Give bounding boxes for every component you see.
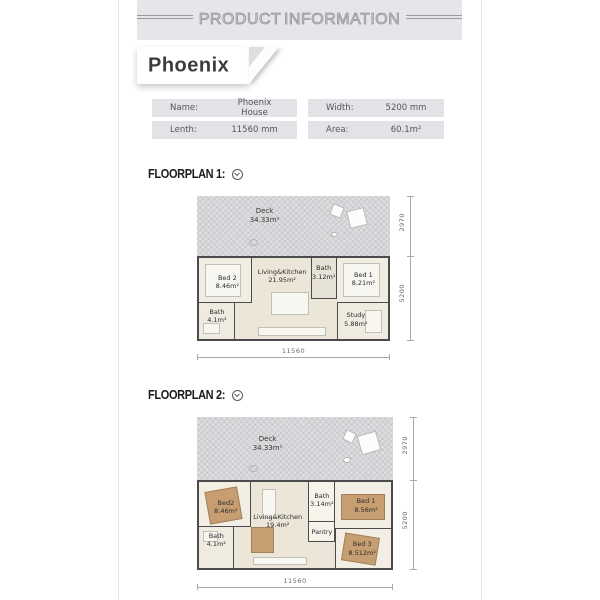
fp2-bath-label: Bath 4.1m² <box>201 532 232 548</box>
width-label: Width: <box>326 103 380 113</box>
area-value: 60.1m² <box>380 125 444 135</box>
fp1-width-dim: 11560 <box>282 347 305 355</box>
fp2-living-label: Living&Kitchen 19.4m² <box>245 513 310 529</box>
chevron-down-icon[interactable] <box>232 169 243 180</box>
header-band: PRODUCT INFORMATION <box>137 0 462 40</box>
product-name-ribbon: Phoenix <box>137 47 249 84</box>
deck-lounge-chair <box>357 431 382 456</box>
fp2-pantry-label: Pantry <box>307 528 338 536</box>
deck-lounge-chair <box>342 429 357 444</box>
deck-lounge-chair <box>346 207 368 229</box>
fp2-bed1-label: Bed 1 8.56m² <box>345 497 387 513</box>
fp2-kitchen-counter <box>253 557 307 565</box>
fp1-deck-label: Deck 34.33m² <box>197 207 332 225</box>
fp2-deck-area: 34.33m² <box>197 444 338 453</box>
fp2-bath-small-label: Bath 3.14m² <box>307 492 338 508</box>
name-label: Name: <box>170 103 224 113</box>
fp1-deck-area: 34.33m² <box>197 216 332 225</box>
fp1-bed2-label: Bed 2 8.46m² <box>205 274 250 290</box>
fp2-deck-name: Deck <box>197 435 338 444</box>
floorplan1-heading: FLOORPLAN 1: <box>148 167 243 181</box>
fp2-dining-table <box>251 527 274 553</box>
length-value: 11560 mm <box>224 125 297 135</box>
fp1-bath-label: Bath 4.1m² <box>201 308 233 324</box>
fp2-width-dim: 11560 <box>283 577 306 585</box>
fp1-study-label: Study 5.88m² <box>335 311 377 327</box>
fp1-deck: Deck 34.33m² <box>197 196 390 256</box>
product-info-page: PRODUCT INFORMATION Phoenix Name: Phoeni… <box>0 0 600 600</box>
page-title: PRODUCT INFORMATION <box>193 11 407 29</box>
fp1-dining-table <box>271 292 309 315</box>
deck-planter <box>249 239 258 246</box>
fp2-house: Bed2 8.46m² Living&Kitchen 19.4m² Bath 3… <box>197 480 393 570</box>
deck-side-table <box>331 232 338 237</box>
fp1-house-depth-dim: 5200 <box>398 284 406 303</box>
spec-row-1: Name: Phoenix House Width: 5200 mm <box>152 99 444 117</box>
dim-tick <box>410 569 417 570</box>
fp1-bed1-label: Bed 1 8.21m² <box>343 271 385 287</box>
fp1-living-label: Living&Kitchen 21.95m² <box>250 268 314 284</box>
fp2-house-depth-dim: 5200 <box>401 511 409 530</box>
dim-tick <box>407 340 414 341</box>
fp2-horizontal-dim-line <box>197 587 393 588</box>
dim-tick <box>392 584 393 590</box>
page-frame-right <box>481 0 482 600</box>
fp2-bed3-label: Bed 3 8.512m² <box>341 540 383 556</box>
spec-cell-length: Lenth: 11560 mm <box>152 121 297 139</box>
fp1-deck-depth-dim: 2970 <box>398 213 406 232</box>
name-value: Phoenix House <box>224 98 297 118</box>
dim-tick <box>410 417 417 418</box>
fp1-bathtub <box>203 323 220 334</box>
fp2-bed2-label: Bed2 8.46m² <box>203 499 249 515</box>
page-curl-fold <box>249 47 265 67</box>
spec-cell-width: Width: 5200 mm <box>308 99 444 117</box>
fp1-horizontal-dim-line <box>197 357 390 358</box>
dim-tick <box>407 256 414 257</box>
length-label: Lenth: <box>170 125 224 135</box>
product-name: Phoenix <box>148 54 229 77</box>
floorplan2-heading: FLOORPLAN 2: <box>148 388 243 402</box>
spec-cell-name: Name: Phoenix House <box>152 99 297 117</box>
deck-planter <box>249 465 258 472</box>
chevron-down-icon[interactable] <box>232 390 243 401</box>
dim-tick <box>407 196 414 197</box>
floorplan1-drawing: Deck 34.33m² Bed 2 8. <box>197 196 390 341</box>
width-value: 5200 mm <box>380 103 444 113</box>
spec-cell-area: Area: 60.1m² <box>308 121 444 139</box>
fp1-deck-name: Deck <box>197 207 332 216</box>
fp2-deck-label: Deck 34.33m² <box>197 435 338 453</box>
fp1-house: Bed 2 8.46m² Living&Kitchen 21.95m² Bath… <box>197 256 390 341</box>
fp1-kitchen-counter <box>258 327 326 336</box>
spec-row-2: Lenth: 11560 mm Area: 60.1m² <box>152 121 444 139</box>
deck-side-table <box>343 457 351 463</box>
floorplan2-heading-label: FLOORPLAN 2: <box>148 388 225 402</box>
dim-tick <box>410 480 417 481</box>
fp2-deck-depth-dim: 2970 <box>401 436 409 455</box>
dim-tick <box>389 354 390 360</box>
fp1-bath-small-label: Bath 3.12m² <box>309 264 339 280</box>
floorplan2-drawing: Deck 34.33m² Be <box>197 417 393 570</box>
page-frame-left <box>118 0 119 600</box>
dim-tick <box>197 584 198 590</box>
fp2-deck: Deck 34.33m² <box>197 417 393 480</box>
chevron-glyph <box>234 170 240 176</box>
chevron-glyph <box>234 391 240 397</box>
floorplan1-heading-label: FLOORPLAN 1: <box>148 167 225 181</box>
area-label: Area: <box>326 125 380 135</box>
fp2-vertical-dim-line <box>413 417 414 570</box>
fp1-vertical-dim-line <box>410 196 411 341</box>
dim-tick <box>197 354 198 360</box>
